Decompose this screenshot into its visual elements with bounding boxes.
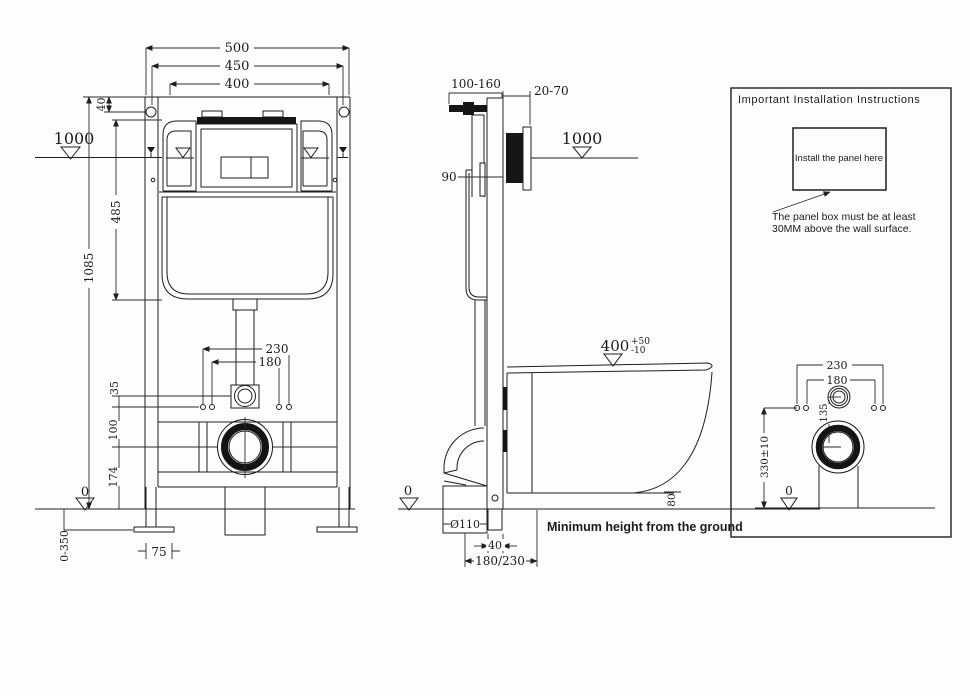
dim-75-label: 75 [151,545,166,559]
drain-elbow: Ø110 [443,428,487,533]
technical-drawing: 0 1000 500 450 400 40 [0,0,970,696]
front-dim-75: 75 [138,543,180,559]
dim-500-label: 500 [225,41,250,56]
front-dim-400: 400 [170,77,329,95]
panel-dim-330-label: 330±10 [759,436,771,478]
flush-button-large [221,157,251,178]
dim-20-70-label: 20-70 [534,84,569,98]
water-connection-box [231,385,259,408]
cistern-clip-right [263,111,283,117]
front-datum-zero: 0 [81,485,89,500]
foot-plate-right [317,527,357,532]
front-dim-40: 40 [95,97,146,112]
panel-dim-180-label: 180 [827,374,848,387]
side-dim-20-70: 20-70 [503,84,569,130]
front-dim-1085: 1085 [82,97,104,509]
cistern-side-profile [466,115,487,426]
cistern-top-band [197,117,296,124]
dim-400-tol-minus: -10 [631,346,646,356]
mounting-hole-right [339,107,349,117]
panel-arrow [773,192,830,212]
mounting-hole-left [146,107,156,117]
front-dim-230-label: 230 [266,342,289,356]
drawing-canvas: 0 1000 500 450 400 40 [0,0,970,696]
frame-post [487,98,503,530]
panel-note-line2: 30MM above the wall surface. [772,223,911,235]
flush-pipe [231,299,259,408]
panel-drain-outlet [812,421,864,508]
dim-40-label: 40 [95,98,108,112]
front-datum-1000-label: 1000 [54,129,95,148]
side-view: 100-160 20-70 90 1000 400 [398,77,820,568]
side-dim-100-160: 100-160 [449,77,502,104]
panel-dim-230-label: 230 [827,359,848,372]
front-datum-1000: 1000 [35,129,162,159]
dim-100-label: 100 [107,420,120,441]
drain-outlet-front [218,417,273,478]
side-dim-400: 400 +50 -10 [601,337,651,366]
toilet-bowl [503,363,712,493]
dim-dia110-label: Ø110 [450,518,480,531]
dim-0-350-label: 0-350 [58,530,71,562]
foot-plate-left [134,527,174,532]
dim-180-230-label: 180/230 [475,554,525,568]
dim-90-label: 90 [441,170,456,184]
dim-1085-label: 1085 [82,253,96,284]
side-dim-40: 40 [474,534,517,553]
frame-feet [134,487,357,535]
panel-ground: 0 [755,484,935,510]
front-dim-180-label: 180 [259,355,282,369]
dim-450-label: 450 [225,59,250,74]
flush-button-small [251,157,268,178]
dim-485-label: 485 [109,201,123,224]
instruction-panel: Important Installation Instructions Inst… [731,88,951,537]
ground-line-front: 0 [35,485,355,510]
dim-35-label: 35 [108,381,121,395]
cistern-clip-left [202,111,222,117]
panel-datum-zero: 0 [785,484,793,498]
minimum-height-note: Minimum height from the ground [547,520,743,534]
dim-80-label: 80 [666,493,678,506]
water-inlet-pipe [449,102,487,115]
front-dim-0-350: 0-350 [58,509,133,562]
dim-100-160-label: 100-160 [451,77,501,91]
side-datum-1000: 1000 [531,129,638,158]
panel-dim-135-label: 135 [819,403,830,422]
dim-400-label: 400 [225,77,250,92]
side-dim-40-label: 40 [488,539,502,552]
panel-water-inlet [828,386,850,408]
side-dim-80: 80 [664,492,681,507]
front-view: 0 1000 500 450 400 40 [35,41,357,562]
side-datum-1000-label: 1000 [562,129,603,148]
panel-box-label: Install the panel here [795,153,883,164]
flush-panel-box [506,127,531,190]
panel-title: Important Installation Instructions [738,94,920,106]
flush-plate [196,124,297,192]
side-datum-zero: 0 [404,484,412,499]
drain-tab [225,487,265,535]
dim-400-label: 400 [601,337,630,355]
panel-note-line1: The panel box must be at least [772,211,916,223]
dim-174-label: 174 [107,467,120,488]
